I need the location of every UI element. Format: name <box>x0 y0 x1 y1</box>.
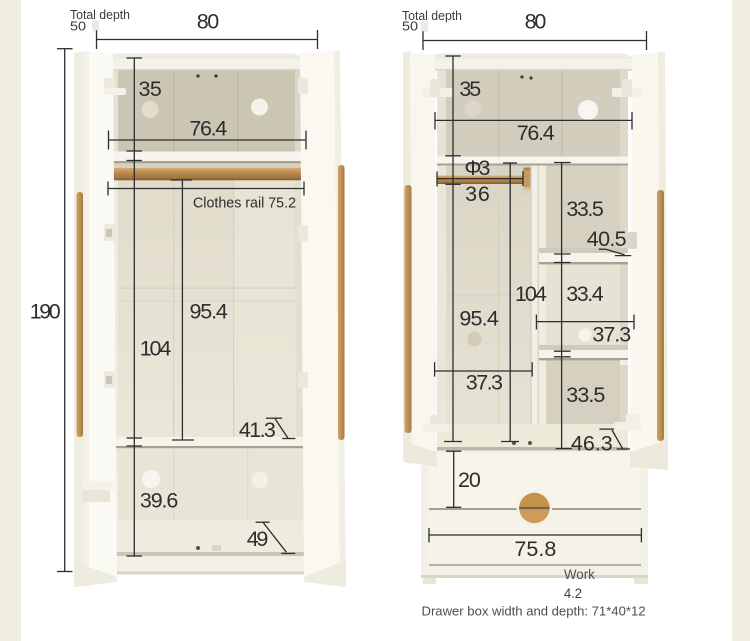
svg-text:46.3: 46.3 <box>571 432 613 456</box>
svg-text:Work: Work <box>564 567 595 582</box>
svg-text:80: 80 <box>197 10 220 34</box>
svg-text:104: 104 <box>515 282 547 306</box>
svg-text:20: 20 <box>458 468 481 492</box>
svg-text:40.5: 40.5 <box>587 227 627 251</box>
svg-text:41.3: 41.3 <box>239 418 276 442</box>
svg-text:Drawer box width and depth: 71: Drawer box width and depth: 71*40*12 <box>422 604 646 619</box>
svg-text:50: 50 <box>70 19 86 34</box>
svg-text:Φ3: Φ3 <box>464 156 490 180</box>
svg-text:35: 35 <box>139 77 162 101</box>
svg-text:37.3: 37.3 <box>466 370 503 394</box>
svg-text:35: 35 <box>459 77 481 101</box>
svg-text:190: 190 <box>30 300 61 324</box>
svg-text:39.6: 39.6 <box>140 489 178 513</box>
svg-text:36: 36 <box>465 182 490 206</box>
svg-text:33.5: 33.5 <box>566 197 603 221</box>
svg-text:33.4: 33.4 <box>566 282 604 306</box>
svg-text:76.4: 76.4 <box>517 121 555 145</box>
svg-text:49: 49 <box>247 527 269 551</box>
svg-text:33.5: 33.5 <box>566 383 605 407</box>
svg-text:95.4: 95.4 <box>459 307 498 331</box>
svg-text:Clothes rail 75.2: Clothes rail 75.2 <box>193 196 296 212</box>
svg-text:95.4: 95.4 <box>190 299 228 323</box>
svg-text:104: 104 <box>140 337 172 361</box>
svg-text:80: 80 <box>525 10 547 34</box>
svg-text:50: 50 <box>402 19 418 34</box>
svg-text:37.3: 37.3 <box>592 323 631 347</box>
svg-text:75.8: 75.8 <box>514 537 556 561</box>
svg-text:4.2: 4.2 <box>564 586 582 601</box>
svg-text:76.4: 76.4 <box>189 117 227 141</box>
